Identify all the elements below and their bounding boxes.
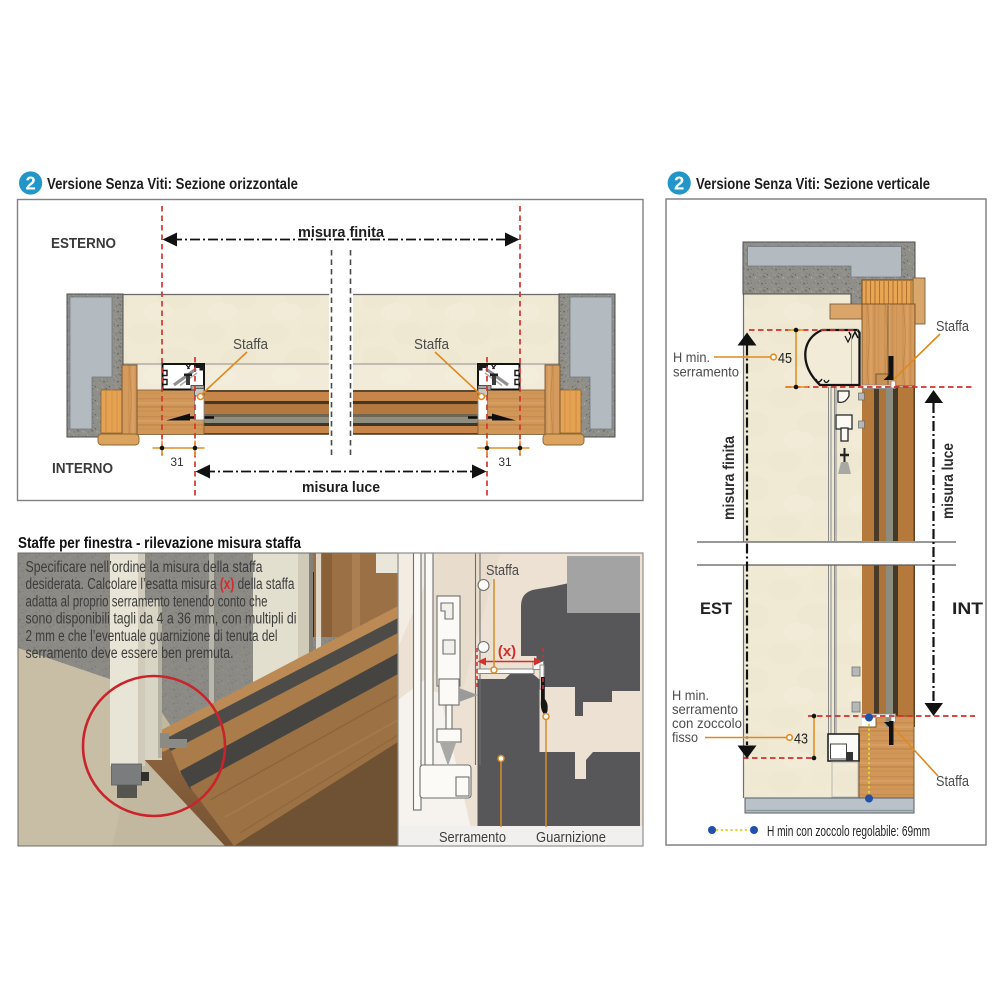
svg-text:2: 2 [674,173,684,194]
svg-text:Staffa: Staffa [486,562,520,579]
svg-text:EST: EST [700,599,733,618]
svg-text:2 mm e che l’eventuale guarniz: 2 mm e che l’eventuale guarnizione di te… [26,628,278,645]
svg-text:Serramento: Serramento [439,829,506,846]
svg-text:Staffa: Staffa [936,773,970,790]
svg-text:Staffa: Staffa [414,337,450,353]
svg-text:Guarnizione: Guarnizione [536,829,606,846]
svg-text:fisso: fisso [672,729,698,745]
svg-text:misura luce: misura luce [302,480,380,496]
svg-text:adatta al proprio serramento t: adatta al proprio serramento tenendo con… [26,593,268,610]
svg-text:sono disponibili tagli da 4 a: sono disponibili tagli da 4 a 36 mm, con… [26,611,297,628]
svg-text:serramento: serramento [673,364,739,380]
svg-text:Staffa: Staffa [233,337,269,353]
svg-text:31: 31 [170,455,184,469]
svg-text:Versione Senza Viti: Sezione o: Versione Senza Viti: Sezione orizzontale [47,176,298,193]
svg-text:INT: INT [952,599,984,618]
svg-text:31: 31 [498,455,512,469]
svg-text:45: 45 [778,350,792,367]
svg-text:2: 2 [25,173,35,194]
svg-text:Staffe per finestra - rilevazi: Staffe per finestra - rilevazione misura… [18,535,301,552]
svg-text:H min con zoccolo regolabile:: H min con zoccolo regolabile: 69mm [767,823,930,840]
svg-text:Staffa: Staffa [936,318,970,335]
svg-text:(x): (x) [498,643,516,660]
svg-text:Versione Senza Viti: Sezione v: Versione Senza Viti: Sezione verticale [696,176,930,193]
svg-text:serramento deve essere ben pre: serramento deve essere ben premuta. [26,645,234,662]
svg-text:ESTERNO: ESTERNO [51,236,116,252]
svg-text:INTERNO: INTERNO [52,461,113,477]
svg-text:misura finita: misura finita [721,436,738,520]
svg-text:misura luce: misura luce [940,443,957,519]
svg-text:desiderata. Calcolare l’esatta: desiderata. Calcolare l’esatta misura (x… [26,576,295,593]
svg-text:43: 43 [794,731,808,748]
svg-text:Specificare nell’ordine la mis: Specificare nell’ordine la misura della … [26,559,263,576]
